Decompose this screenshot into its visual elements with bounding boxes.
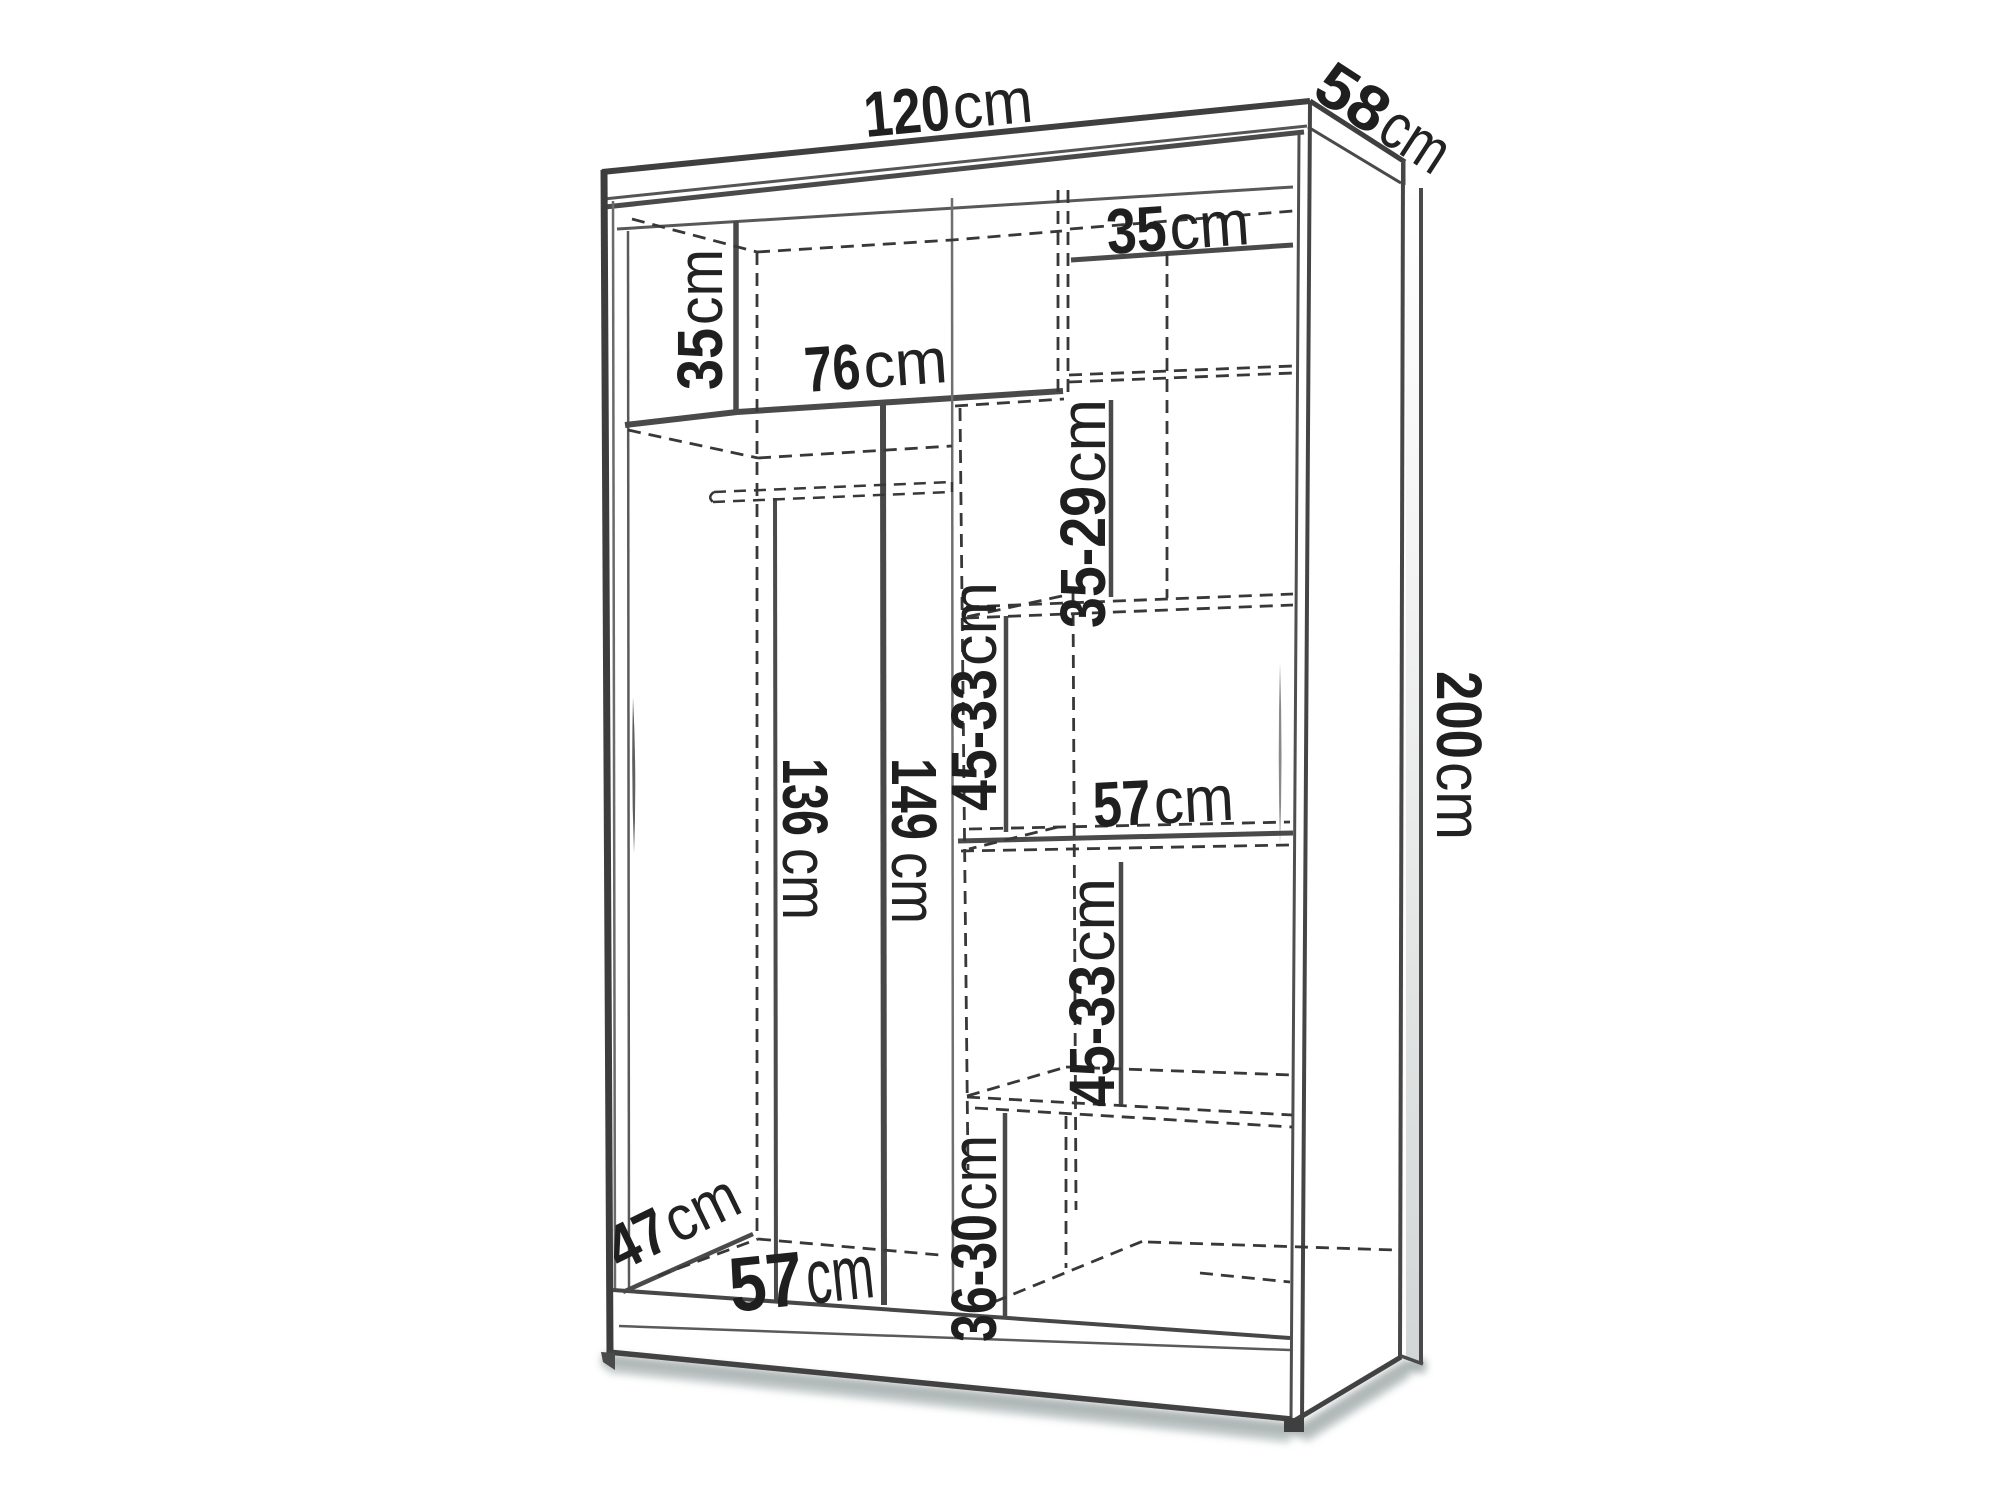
svg-text:76cm: 76cm [802, 324, 950, 406]
svg-text:45-33cm: 45-33cm [1056, 878, 1128, 1107]
svg-text:35-29cm: 35-29cm [1047, 399, 1119, 628]
svg-text:57cm: 57cm [1091, 762, 1236, 841]
svg-text:35cm: 35cm [664, 249, 736, 390]
svg-text:57cm: 57cm [725, 1228, 878, 1329]
svg-text:45-33cm: 45-33cm [938, 582, 1010, 811]
svg-text:36-30cm: 36-30cm [938, 1135, 1010, 1342]
svg-text:35cm: 35cm [1104, 186, 1252, 268]
svg-text:200cm: 200cm [1423, 671, 1495, 840]
